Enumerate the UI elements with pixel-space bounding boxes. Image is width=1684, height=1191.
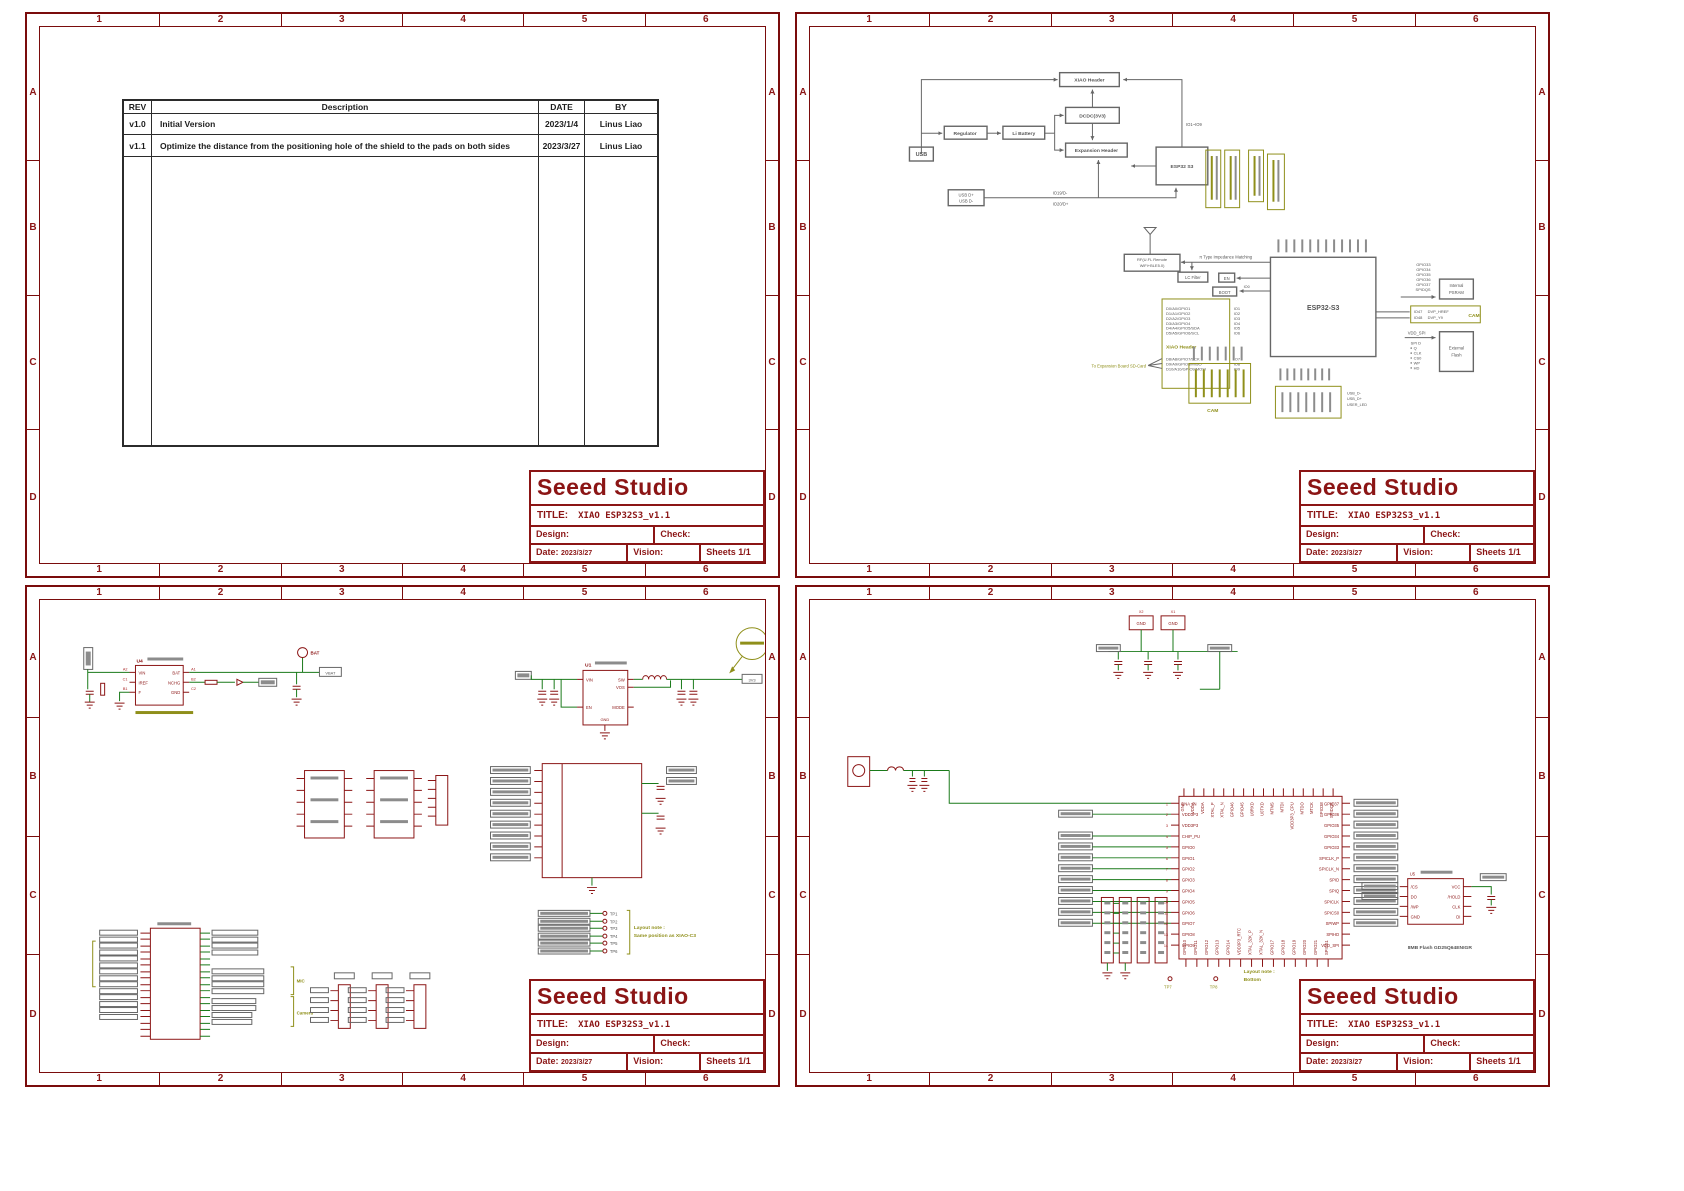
ruler-top: 123456 [39, 14, 766, 26]
title-label: TITLE: [1307, 510, 1338, 521]
pin-label: GPIO12 [1204, 939, 1209, 955]
pin-num: 7 [1166, 868, 1168, 872]
pin-label: CLK [1452, 904, 1460, 909]
tp-label: TP4 [610, 934, 618, 939]
pin-num: 3 [1166, 824, 1168, 828]
pin-label: NCHG [168, 680, 180, 685]
ruler-num: 2 [160, 587, 281, 599]
pad-label: C2 [191, 687, 196, 691]
pin-label: GPIO5 [1182, 899, 1195, 904]
cam-group: IO47 IO48 DVP_HREF DVP_Y9 CAM [1376, 306, 1480, 323]
ruler-num: 4 [1173, 14, 1294, 26]
pin-label: /WP [1411, 904, 1419, 909]
ruler-letter: C [766, 837, 778, 956]
cam-signal: DVP_HREF [1428, 309, 1450, 314]
ruler-num: 5 [524, 587, 645, 599]
vision-label: Vision: [628, 1054, 701, 1070]
col-date: DATE [539, 101, 585, 113]
cam-io: IO48 [1414, 315, 1423, 320]
ruler-num: 5 [524, 1073, 645, 1085]
rev-cell: v1.1 [124, 135, 152, 156]
revision-row-empty [124, 157, 657, 445]
pin-label: MTDO [1299, 802, 1304, 815]
pin-label: GPIO46 [1230, 802, 1235, 818]
ruler-left: ABCD [27, 26, 39, 564]
io20: IO20/D+ [1053, 202, 1069, 207]
net-label: USB_D- [1347, 391, 1362, 395]
pin-num: 4 [1166, 835, 1168, 839]
layout-note-2: Same position as XIAO-C3 [634, 933, 697, 939]
revision-table: REV Description DATE BY v1.0 Initial Ver… [122, 99, 659, 447]
ruler-letter: B [766, 718, 778, 837]
date-value: 2023/3/27 [561, 550, 592, 557]
ruler-letter: B [27, 161, 39, 296]
pad-label: A2 [123, 667, 128, 671]
block-esp32: ESP32 S3 [1171, 164, 1194, 170]
ruler-right: ABCD [766, 26, 778, 564]
layout-note-1: Layout note : [1244, 969, 1275, 975]
lc-filter: LC Filter [1185, 275, 1201, 280]
pad-ref: X1 [1171, 610, 1176, 614]
pin-label: VDD3P3_CPU [1289, 802, 1294, 829]
vision-label: Vision: [628, 545, 701, 561]
ruler-letter: C [1536, 296, 1548, 431]
by-cell: Linus Liao [585, 114, 657, 134]
pin-label: GPIO13 [1215, 939, 1220, 955]
io19: IO19/D- [1053, 191, 1068, 196]
revision-row: v1.0 Initial Version 2023/1/4 Linus Liao [124, 114, 657, 135]
pin-label: CHIP_PU [1182, 834, 1200, 839]
small-headers [311, 973, 430, 1029]
ruler-letter: A [766, 599, 778, 718]
ruler-letter: B [766, 161, 778, 296]
en-button: EN [1224, 276, 1230, 281]
psram-box-1: Internal [1449, 283, 1463, 288]
pin-label: GPIO45 [1240, 802, 1245, 818]
ruler-top: 123456 [809, 14, 1536, 26]
block-xiao-header: XIAO Header [1074, 78, 1104, 84]
pin-label: GPIO34 [1324, 834, 1340, 839]
pin-label: MTDI [1279, 802, 1284, 812]
ruler-num: 4 [403, 587, 524, 599]
pin-label: GPIO18 [1280, 939, 1285, 955]
header-pin-groups [1206, 150, 1285, 210]
design-label: Design: [531, 1036, 655, 1052]
sheets-label: Sheets 1/1 [1471, 1054, 1533, 1070]
ruler-num: 2 [160, 14, 281, 26]
title-label: TITLE: [1307, 1019, 1338, 1030]
psram-box-2: PSRAM [1449, 290, 1464, 295]
pin-label: MODE [612, 705, 625, 710]
pin-label: BAT [172, 670, 180, 675]
ruler-num: 2 [930, 14, 1051, 26]
tp-label: TP1 [610, 911, 618, 916]
pin-label: XTAL_32K_N [1258, 930, 1263, 955]
boot-button: BOOT [1219, 290, 1231, 295]
pin-label: GPIO33 [1324, 845, 1340, 850]
date-field: Date: 2023/3/27 [1301, 545, 1398, 561]
layout-note-2: Bottom [1244, 977, 1262, 983]
cam-io: IO47 [1414, 309, 1423, 314]
ruler-letter: C [27, 296, 39, 431]
ruler-left: ABCD [797, 26, 809, 564]
tp-label: TP5 [610, 941, 618, 946]
date-value: 2023/3/27 [1331, 1059, 1362, 1066]
ruler-num: 2 [930, 564, 1051, 576]
pin-label: SPICS1 [1324, 940, 1329, 955]
ruler-letter: A [27, 599, 39, 718]
sheet-title: XIAO ESP32S3_v1.1 [578, 1020, 670, 1030]
pin-label: GPIO17 [1269, 939, 1274, 955]
pin-label: GPIO0 [1182, 845, 1195, 850]
pin-label: SPIWP [1326, 921, 1340, 926]
ruler-num: 5 [524, 564, 645, 576]
3v3-flag: 3V3 [749, 677, 757, 682]
date-label: Date: [1306, 547, 1329, 557]
sd-card-note: To Expansion Board SD-Card [1092, 363, 1147, 368]
usb-dp: USB D+ [959, 193, 975, 198]
pin-label: GPIO11 [1193, 940, 1198, 955]
check-label: Check: [1425, 1036, 1533, 1052]
net-label: USB_D+ [1347, 397, 1363, 401]
ruler-num: 4 [1173, 1073, 1294, 1085]
pin-label: VDDA [1200, 802, 1205, 814]
ruler-letter: D [797, 955, 809, 1073]
ruler-num: 5 [1294, 14, 1415, 26]
ruler-letter: C [1536, 837, 1548, 956]
desc-cell: Initial Version [152, 114, 539, 134]
ruler-letter: A [1536, 599, 1548, 718]
xiao-io: IO6 [1234, 331, 1241, 336]
pin-label: VIN [138, 670, 145, 675]
pin-num: 9 [1166, 890, 1168, 894]
cam-box-label: CAM [1207, 408, 1218, 414]
ruler-num: 3 [282, 1073, 403, 1085]
pin-label: U0RXD [1250, 802, 1255, 816]
ruler-right: ABCD [1536, 599, 1548, 1073]
vdd-spi: VDD_SPI [1408, 331, 1426, 336]
tp7-label: TP7 [1164, 985, 1172, 990]
io-range: IO1~IO9 [1186, 122, 1203, 127]
ruler-letter: D [1536, 955, 1548, 1073]
ruler-bottom: 123456 [809, 1073, 1536, 1085]
pad-label: B2 [191, 677, 196, 681]
ruler-letter: D [27, 430, 39, 564]
ruler-letter: C [27, 837, 39, 956]
pad-label: B1 [123, 687, 128, 691]
pad-label: A1 [191, 667, 196, 671]
pin-label: SPID [1329, 878, 1339, 883]
buck-ref: U1 [585, 662, 592, 668]
pin-label: DI [1456, 914, 1460, 919]
date-field: Date: 2023/3/27 [531, 545, 628, 561]
revision-header: REV Description DATE BY [124, 101, 657, 114]
usb-dm: USB D- [959, 199, 974, 204]
vbat-flag: VBAT [325, 670, 336, 675]
date-label: Date: [1306, 1056, 1329, 1066]
flash-group: VDD_SPI SPI D Q CLK CS0 WP HD External F… [1405, 331, 1474, 372]
lower-pin-groups: CAM USB_D- USB_D+ USER_LED [1189, 347, 1367, 418]
pin-label: GPIO8 [1182, 932, 1195, 937]
tp-label: TP6 [610, 949, 618, 954]
pin-label: VDD3P3 [1182, 823, 1199, 828]
ruler-num: 1 [809, 564, 930, 576]
resistor-networks [297, 771, 448, 838]
ruler-num: 6 [1416, 564, 1536, 576]
ruler-num: 3 [282, 564, 403, 576]
pin-label: GND [1180, 802, 1185, 811]
pin-label: /HOLD [1448, 894, 1461, 899]
pin-label: VDDA [1190, 802, 1195, 814]
ruler-right: ABCD [1536, 26, 1548, 564]
block-dcdc: DCDC(3V3) [1079, 113, 1106, 119]
ruler-num: 2 [930, 587, 1051, 599]
pin-label: VCC [1452, 885, 1461, 890]
design-label: Design: [1301, 1036, 1425, 1052]
ruler-top: 123456 [809, 587, 1536, 599]
pin-label: VDD3P3_RTC [1237, 928, 1242, 955]
sheets-label: Sheets 1/1 [701, 545, 763, 561]
ruler-num: 4 [403, 14, 524, 26]
ruler-num: 2 [160, 564, 281, 576]
ruler-letter: A [766, 26, 778, 161]
pin-label: GND [1411, 914, 1420, 919]
pin-label: GPIO1 [1182, 856, 1195, 861]
date-label: Date: [536, 1056, 559, 1066]
b2b-connector: MIC Camera [93, 922, 314, 1039]
title-label: TITLE: [537, 510, 568, 521]
ruler-left: ABCD [27, 599, 39, 1073]
ruler-num: 6 [646, 14, 766, 26]
by-cell: Linus Liao [585, 135, 657, 156]
sheet-revision: 123456 123456 ABCD ABCD REV Description … [25, 12, 780, 578]
ruler-letter: A [797, 26, 809, 161]
flash-caption: 8MB Flash GD25Q64ENIGR [1408, 945, 1473, 951]
net-label: SPIDQS [1416, 287, 1431, 292]
pin-num: 5 [1166, 846, 1168, 850]
ruler-letter: B [1536, 161, 1548, 296]
pin-label: GPIO7 [1182, 921, 1195, 926]
ruler-num: 3 [1052, 587, 1173, 599]
pin-label: MTMS [1269, 802, 1274, 814]
mic-note: MIC [297, 979, 306, 984]
pin-num: 2 [1166, 813, 1168, 817]
vision-label: Vision: [1398, 545, 1471, 561]
ruler-num: 1 [39, 587, 160, 599]
right-net-flags [1354, 799, 1398, 926]
title-block: Seeed Studio TITLE:XIAO ESP32S3_v1.1 Des… [529, 470, 765, 563]
bat-testpoint: BAT [311, 651, 320, 656]
pin-label: U0TXD [1259, 802, 1264, 816]
ruler-bottom: 123456 [809, 564, 1536, 576]
ruler-left: ABCD [797, 599, 809, 1073]
net-label: USER_LED [1347, 403, 1367, 407]
buck-circuit: U1 VIN EN SW VOS MODE GND 3V3 [515, 628, 765, 739]
pin-label: GPIO4 [1182, 889, 1195, 894]
sheet-title: XIAO ESP32S3_v1.1 [578, 511, 670, 521]
pin-label: SPIHD [1326, 932, 1339, 937]
xiao-signal: D5/A5/GPIO6/SCL [1166, 331, 1200, 336]
pin-label: /CS [1411, 885, 1418, 890]
pin-label: SPICS0 [1324, 910, 1339, 915]
ruler-num: 6 [646, 587, 766, 599]
rf-label-1: RF(U.FL Remote [1137, 257, 1168, 262]
cam-signal: DVP_Y9 [1428, 315, 1444, 320]
pin-label: GPIO20 [1302, 939, 1307, 955]
ruler-num: 5 [524, 14, 645, 26]
ruler-num: 1 [809, 1073, 930, 1085]
pin-label: SPIDQS [1329, 802, 1334, 818]
title-label: TITLE: [537, 1019, 568, 1030]
cam-tag: CAM [1468, 313, 1479, 319]
ruler-num: 2 [160, 1073, 281, 1085]
revision-row: v1.1 Optimize the distance from the posi… [124, 135, 657, 157]
brand: Seeed Studio [531, 981, 763, 1015]
pad-ref: X2 [1139, 610, 1144, 614]
ruler-bottom: 123456 [39, 1073, 766, 1085]
ruler-letter: D [766, 430, 778, 564]
check-label: Check: [655, 1036, 763, 1052]
flash-ref: U5 [1410, 872, 1416, 877]
ruler-num: 3 [282, 587, 403, 599]
pin-label: EN [586, 705, 592, 710]
block-expansion-header: Expansion Header [1075, 148, 1118, 154]
check-label: Check: [1425, 527, 1533, 543]
sheet-power: 123456 123456 ABCD ABCD U4 VIN IREF F BA… [25, 585, 780, 1087]
pin-label: IREF [138, 680, 148, 685]
pin-label: GPIO35 [1324, 823, 1340, 828]
pin-label: SPICLK_N [1319, 867, 1339, 872]
brand: Seeed Studio [1301, 981, 1533, 1015]
pin-label: GPIO2 [1182, 867, 1195, 872]
sheet-title: XIAO ESP32S3_v1.1 [1348, 511, 1440, 521]
ruler-bottom: 123456 [39, 564, 766, 576]
date-field: Date: 2023/3/27 [531, 1054, 628, 1070]
pin-label: XTAL_32K_P [1248, 930, 1253, 955]
pin-label: GPIO10 [1182, 939, 1187, 955]
psram-group: GPIO33 GPIO34 GPIO35 GPIO36 GPIO37 SPIDQ… [1401, 262, 1474, 299]
ruler-letter: B [1536, 718, 1548, 837]
ruler-letter: D [1536, 430, 1548, 564]
date-value: 2023/3/27 [1331, 550, 1362, 557]
xiao-header-label: XIAO Header [1166, 345, 1196, 351]
pin-label: SPICLK [1324, 899, 1339, 904]
vision-label: Vision: [1398, 1054, 1471, 1070]
layout-note-1: Layout note : [634, 925, 665, 931]
pin-label: GND [600, 717, 609, 722]
antenna-circuit [848, 757, 1171, 804]
pin-label: GPIO38 [1319, 802, 1324, 818]
ruler-num: 6 [1416, 14, 1536, 26]
desc-cell: Optimize the distance from the positioni… [152, 135, 539, 156]
date-cell: 2023/3/27 [539, 135, 585, 156]
ruler-num: 6 [1416, 587, 1536, 599]
ruler-num: 6 [1416, 1073, 1536, 1085]
pin-label: GPIO21 [1313, 939, 1318, 955]
ruler-num: 5 [1294, 564, 1415, 576]
usb-connector [491, 764, 697, 894]
col-desc: Description [152, 101, 539, 113]
charger-circuit: U4 VIN IREF F BAT NCHG GND A2 C1 B1 A1 B… [84, 648, 342, 714]
pin-num: 8 [1166, 879, 1168, 883]
ruler-letter: B [797, 161, 809, 296]
sheet-mcu: 123456 123456 ABCD ABCD GND GND X2 X1 [795, 585, 1550, 1087]
ruler-num: 3 [1052, 14, 1173, 26]
ruler-letter: B [797, 718, 809, 837]
pin-label: GPIO3 [1182, 878, 1195, 883]
ruler-num: 3 [282, 14, 403, 26]
ruler-num: 5 [1294, 587, 1415, 599]
title-block: Seeed Studio TITLE:XIAO ESP32S3_v1.1 Des… [529, 979, 765, 1072]
ruler-letter: C [797, 837, 809, 956]
ruler-num: 3 [1052, 564, 1173, 576]
pin-label: XTAL_P [1210, 802, 1215, 817]
charger-ref: U4 [136, 658, 143, 664]
block-usb: USB [916, 152, 928, 158]
rev-cell: v1.0 [124, 114, 152, 134]
battery-pads: GND GND X2 X1 [1096, 610, 1237, 689]
title-block: Seeed Studio TITLE:XIAO ESP32S3_v1.1 Des… [1299, 470, 1535, 563]
design-label: Design: [1301, 527, 1425, 543]
xiao-signal: D10/A10/GPIO9/MOSI [1166, 366, 1206, 371]
pin-label: XTAL_N [1220, 802, 1225, 817]
pin-num: 6 [1166, 857, 1168, 861]
ruler-letter: B [27, 718, 39, 837]
pin-label: F [138, 690, 141, 695]
ruler-num: 1 [39, 564, 160, 576]
ruler-num: 4 [1173, 587, 1294, 599]
check-label: Check: [655, 527, 763, 543]
ruler-top: 123456 [39, 587, 766, 599]
date-field: Date: 2023/3/27 [1301, 1054, 1398, 1070]
date-value: 2023/3/27 [561, 1059, 592, 1066]
esp32s3-mcu: 1 2 3 4 5 6 7 8 9 10 11 12 13 14 LNA_IN … [1164, 788, 1350, 966]
ruler-letter: A [27, 26, 39, 161]
ruler-letter: D [797, 430, 809, 564]
ruler-letter: A [1536, 26, 1548, 161]
xiao-header-box: D0/A0/GPIO1 D1/A1/GPIO2 D2/A2/GPIO3 D3/A… [1092, 299, 1241, 388]
ruler-num: 2 [930, 1073, 1051, 1085]
ruler-letter: A [797, 599, 809, 718]
pin-label: SPICLK_P [1319, 856, 1339, 861]
pin-num: 1 [1166, 802, 1168, 806]
spi-item: HD [1414, 365, 1420, 370]
ruler-num: 6 [646, 564, 766, 576]
pin-label: GPIO6 [1182, 910, 1195, 915]
sheets-label: Sheets 1/1 [1471, 545, 1533, 561]
ruler-num: 4 [1173, 564, 1294, 576]
pad-gnd: GND [1168, 621, 1177, 626]
ruler-letter: D [766, 955, 778, 1073]
pin-label: DO [1411, 894, 1418, 899]
pin-label: GPIO19 [1291, 939, 1296, 955]
col-by: BY [585, 101, 657, 113]
ruler-letter: D [27, 955, 39, 1073]
design-label: Design: [531, 527, 655, 543]
pin-label: GPIO14 [1226, 939, 1231, 955]
io0-label: IO0 [1244, 285, 1250, 289]
ruler-num: 4 [403, 564, 524, 576]
date-cell: 2023/1/4 [539, 114, 585, 134]
ruler-num: 1 [809, 587, 930, 599]
ruler-num: 4 [403, 1073, 524, 1085]
pin-label: MTCK [1309, 802, 1314, 814]
matching-note: π Type Impedance Matching [1199, 254, 1253, 259]
tp8-label: TP8 [1210, 985, 1218, 990]
ruler-num: 1 [39, 1073, 160, 1085]
pad-label: C1 [123, 677, 128, 681]
ruler-num: 6 [646, 1073, 766, 1085]
